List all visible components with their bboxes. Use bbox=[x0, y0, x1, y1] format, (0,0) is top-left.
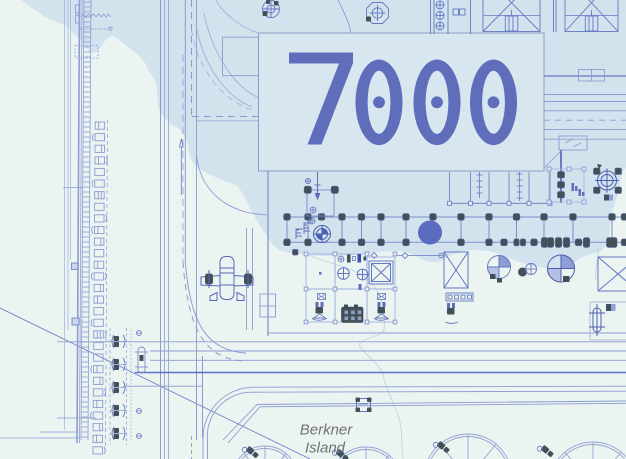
svg-text:Berkner: Berkner bbox=[300, 422, 354, 439]
svg-text:Island: Island bbox=[305, 440, 346, 457]
